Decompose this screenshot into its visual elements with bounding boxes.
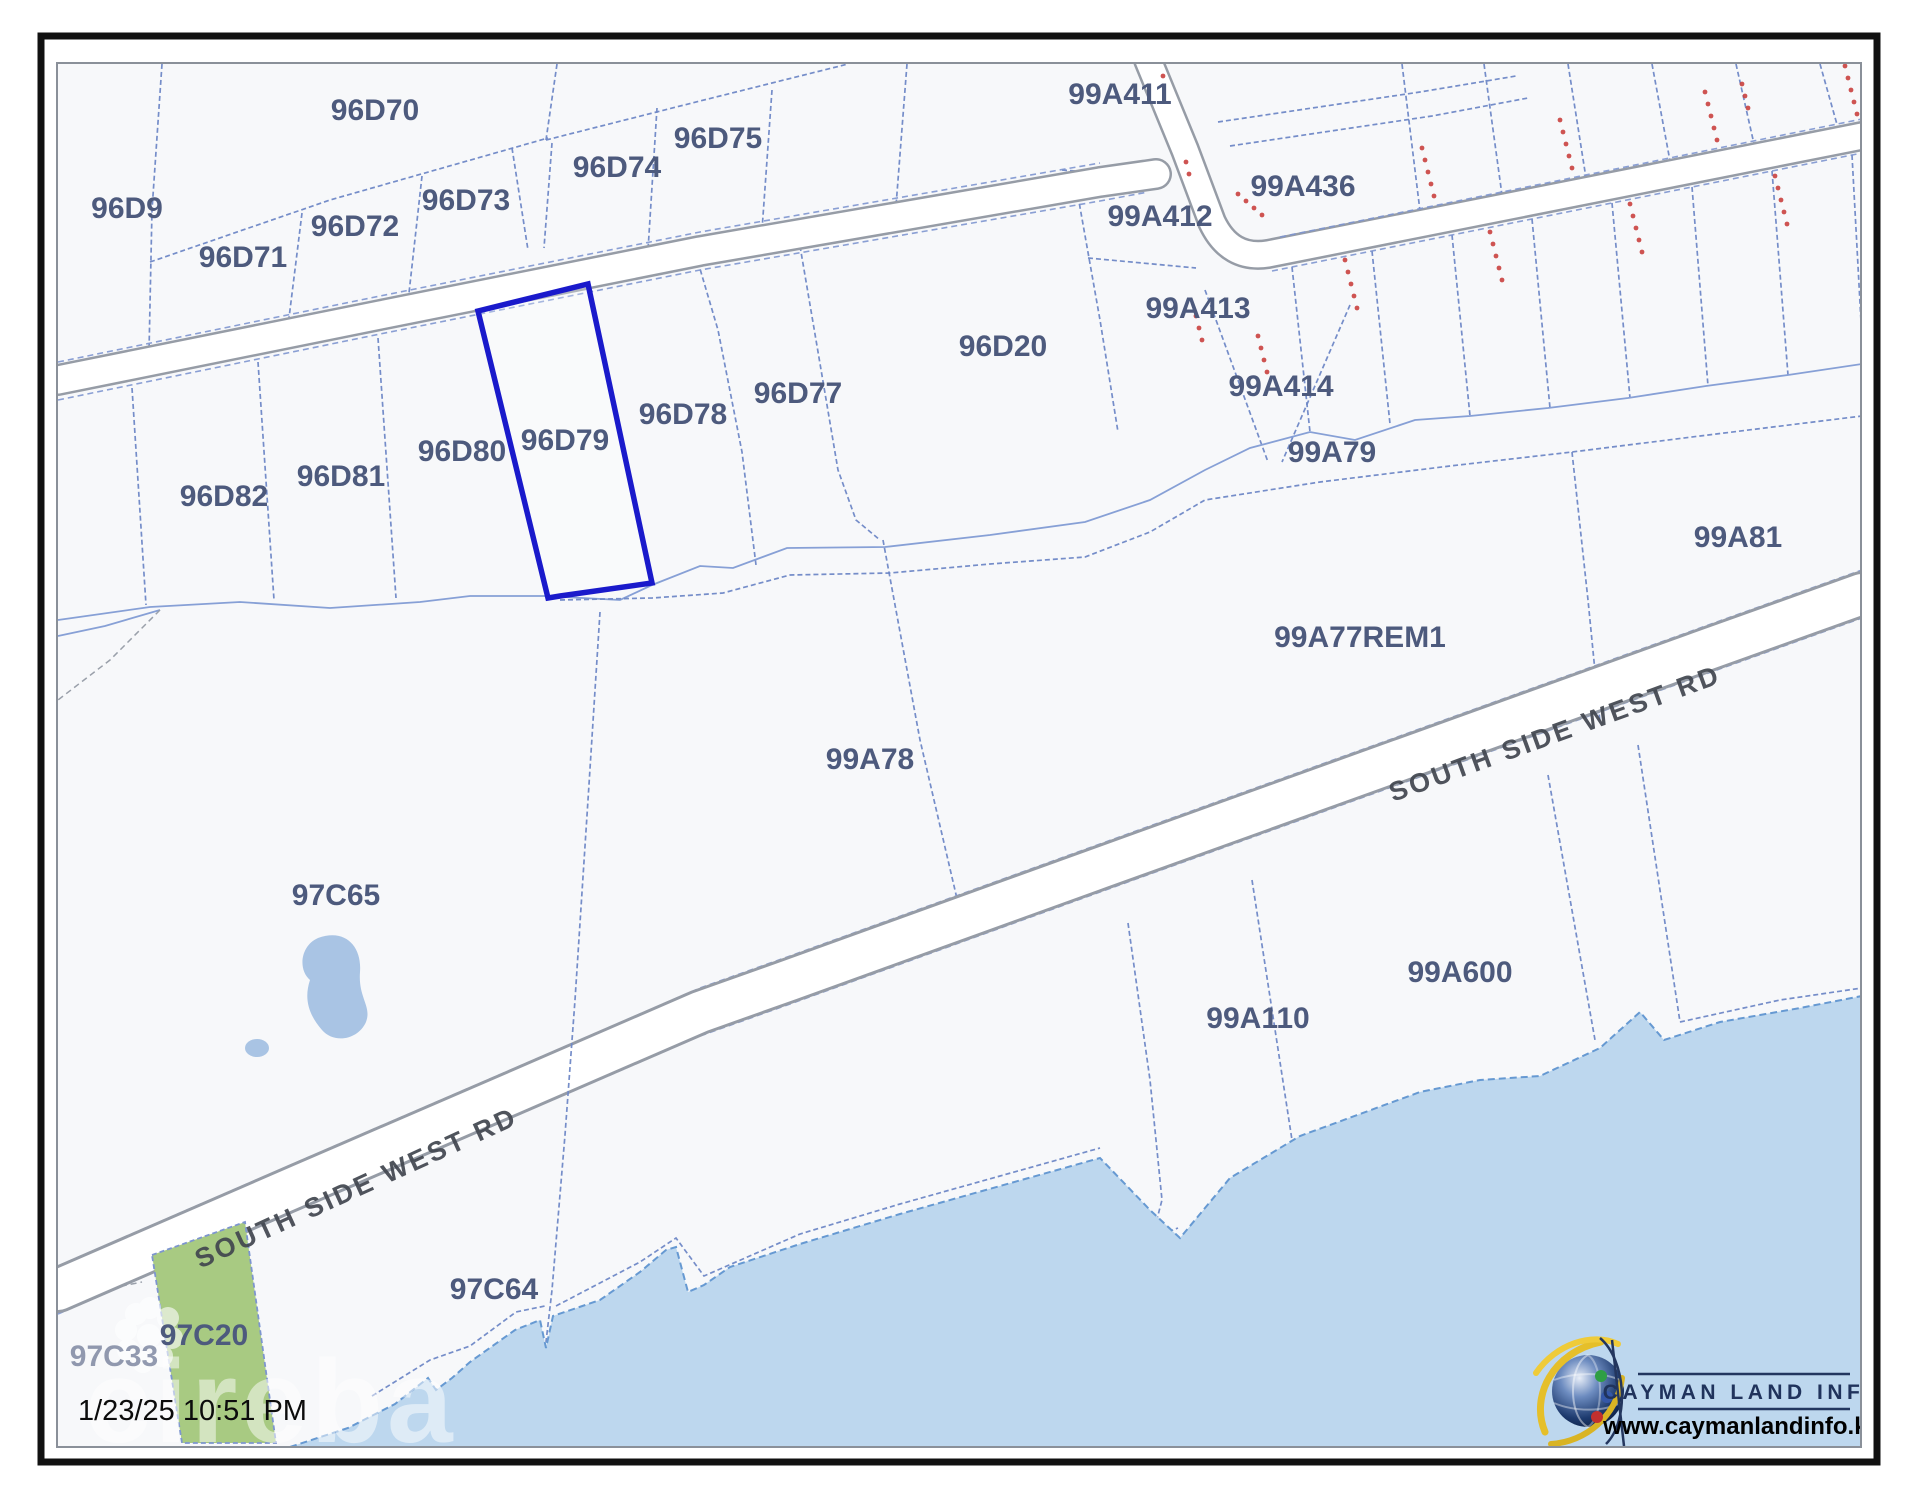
parcel-label-96D77: 96D77 [754, 377, 842, 410]
survey-mark-dot [1712, 126, 1717, 131]
survey-mark-dot [1640, 250, 1645, 255]
survey-mark-dot [1355, 306, 1360, 311]
survey-mark-dot [1567, 154, 1572, 159]
survey-mark-dot [1244, 199, 1249, 204]
parcel-label-96D80: 96D80 [418, 435, 506, 468]
parcel-label-96D20: 96D20 [959, 330, 1047, 363]
survey-mark-dot [1637, 238, 1642, 243]
survey-mark-dot [1346, 270, 1351, 275]
survey-mark-dot [1256, 334, 1261, 339]
survey-mark-dot [1740, 82, 1745, 87]
parcel-label-96D78: 96D78 [639, 398, 727, 431]
survey-mark-dot [1423, 158, 1428, 163]
survey-mark-dot [1197, 326, 1202, 331]
survey-mark-dot [1200, 338, 1205, 343]
survey-mark-dot [1561, 130, 1566, 135]
parcel-label-96D70: 96D70 [331, 94, 419, 127]
survey-mark-dot [1852, 100, 1857, 105]
survey-mark-dot [1776, 186, 1781, 191]
parcel-label-96D74: 96D74 [573, 151, 662, 184]
survey-mark-dot [1849, 88, 1854, 93]
survey-mark-dot [1260, 213, 1265, 218]
survey-mark-dot [1779, 198, 1784, 203]
survey-mark-dot [1628, 202, 1633, 207]
survey-mark-dot [1564, 142, 1569, 147]
survey-mark-dot [1631, 214, 1636, 219]
parcel-label-99A412: 99A412 [1107, 200, 1212, 233]
parcel-label-97C64: 97C64 [450, 1273, 539, 1306]
survey-mark-dot [1488, 230, 1493, 235]
survey-mark-dot [1184, 160, 1189, 165]
parcel-label-99A411: 99A411 [1068, 78, 1171, 111]
parcel-label-99A436: 99A436 [1250, 170, 1355, 203]
survey-mark-dot [1715, 138, 1720, 143]
map-viewer-page: cireba 96D996D7096D7196D7296D7396D7496D7… [0, 0, 1920, 1506]
parcel-label-96D71: 96D71 [199, 241, 287, 274]
survey-mark-dot [1855, 112, 1860, 117]
survey-mark-dot [1420, 146, 1425, 151]
parcel-label-99A78: 99A78 [826, 743, 914, 776]
parcel-label-99A81: 99A81 [1694, 521, 1782, 554]
survey-mark-dot [1352, 294, 1357, 299]
survey-mark-dot [1570, 166, 1575, 171]
survey-mark-dot [1500, 278, 1505, 283]
survey-mark-dot [1252, 206, 1257, 211]
survey-mark-dot [1259, 346, 1264, 351]
parcel-label-96D72: 96D72 [311, 210, 399, 243]
survey-mark-dot [1773, 174, 1778, 179]
cadastral-map[interactable]: cireba 96D996D7096D7196D7296D7396D7496D7… [0, 0, 1920, 1506]
parcel-label-97C65: 97C65 [292, 879, 380, 912]
survey-mark-dot [1491, 242, 1496, 247]
survey-mark-dot [1432, 194, 1437, 199]
parcel-label-96D82: 96D82 [180, 480, 268, 513]
survey-mark-dot [1843, 64, 1848, 69]
survey-mark-dot [1743, 94, 1748, 99]
survey-mark-dot [1343, 258, 1348, 263]
survey-mark-dot [1558, 118, 1563, 123]
logo-url: www.caymanlandinfo.ky [1602, 1413, 1882, 1440]
parcel-label-99A110: 99A110 [1206, 1002, 1309, 1035]
parcel-label-99A413: 99A413 [1145, 292, 1250, 325]
parcel-label-96D73: 96D73 [422, 184, 510, 217]
logo-title: CAYMAN LAND INFO [1603, 1381, 1885, 1404]
survey-mark-dot [1426, 170, 1431, 175]
survey-mark-dot [1494, 254, 1499, 259]
survey-mark-dot [1497, 266, 1502, 271]
survey-mark-dot [1349, 282, 1354, 287]
survey-mark-dot [1709, 114, 1714, 119]
timestamp: 1/23/25 10:51 PM [78, 1395, 307, 1427]
parcel-label-99A77REM1: 99A77REM1 [1274, 621, 1446, 654]
survey-mark-dot [1429, 182, 1434, 187]
survey-mark-dot [1782, 210, 1787, 215]
survey-mark-dot [1236, 192, 1241, 197]
parcel-label-96D75: 96D75 [674, 122, 762, 155]
parcel-label-96D81: 96D81 [297, 460, 385, 493]
parcel-label-99A414: 99A414 [1228, 370, 1333, 403]
survey-mark-dot [1746, 106, 1751, 111]
survey-mark-dot [1706, 102, 1711, 107]
survey-mark-dot [1785, 222, 1790, 227]
survey-mark-dot [1634, 226, 1639, 231]
survey-mark-dot [1703, 90, 1708, 95]
parcel-label-99A79: 99A79 [1288, 436, 1376, 469]
parcel-label-97C33: 97C33 [70, 1340, 158, 1373]
survey-mark-dot [1846, 76, 1851, 81]
survey-mark-dot [1187, 172, 1192, 177]
parcel-label-96D9: 96D9 [91, 192, 163, 225]
parcel-label-96D79: 96D79 [521, 424, 609, 457]
parcel-label-97C20: 97C20 [160, 1319, 248, 1352]
parcel-label-99A600: 99A600 [1407, 956, 1512, 989]
survey-mark-dot [1262, 358, 1267, 363]
